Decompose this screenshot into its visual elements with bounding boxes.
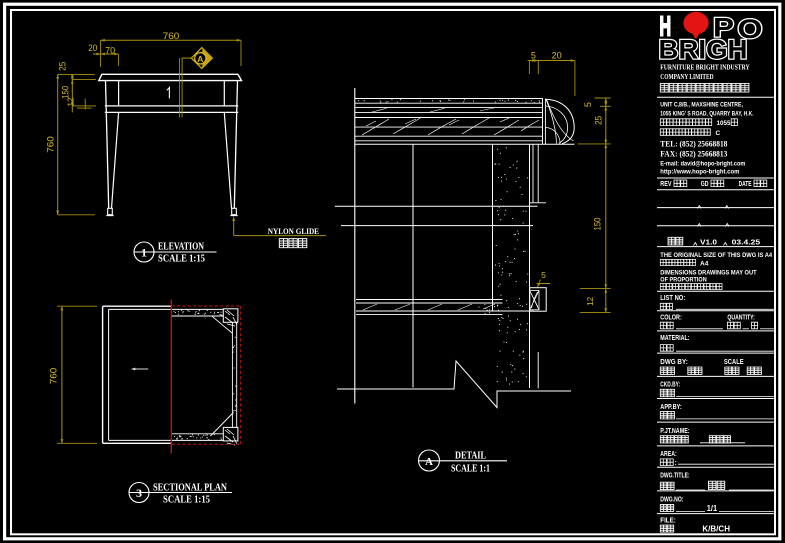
svg-text:QUANTITY:: QUANTITY: [727,314,755,321]
svg-text:150: 150 [61,86,71,99]
svg-text:DWG.TITLE:: DWG.TITLE: [660,473,689,480]
svg-text:FILE:: FILE: [660,517,676,524]
svg-text:20: 20 [88,43,97,53]
svg-text:760: 760 [163,31,180,42]
svg-text:70: 70 [105,45,115,55]
svg-text:1055 KING' S ROAD, QUARRY BAY,: 1055 KING' S ROAD, QUARRY BAY, H.K. [660,111,753,118]
svg-text:25: 25 [57,62,67,71]
svg-text:V1.0: V1.0 [700,237,717,246]
svg-text:K/B/CH: K/B/CH [702,525,730,534]
svg-text:TEL: (852) 25668818: TEL: (852) 25668818 [660,139,727,148]
svg-text:DWG.NO:: DWG.NO: [660,497,683,504]
svg-text:SCALE: SCALE [724,359,744,366]
svg-text:http://www.hopo-bright.com: http://www.hopo-bright.com [660,168,739,175]
svg-text:SCALE 1:15: SCALE 1:15 [163,495,210,506]
svg-text:5: 5 [531,51,536,61]
svg-text:12: 12 [66,97,76,106]
svg-text:760: 760 [49,368,60,385]
svg-text:COLOR:: COLOR: [660,314,682,321]
svg-text:12: 12 [585,297,595,306]
svg-text:LIST NO:: LIST NO: [660,295,685,302]
svg-text:SECTIONAL PLAN: SECTIONAL PLAN [153,482,227,494]
svg-text:SCALE 1:1: SCALE 1:1 [451,464,490,475]
svg-text:COMPANY LIMITED: COMPANY LIMITED [660,73,713,81]
svg-text:03.4.25: 03.4.25 [732,237,760,246]
svg-text:FURNITURE BRIGHT INDUSTRY: FURNITURE BRIGHT INDUSTRY [660,63,749,71]
svg-text:150: 150 [593,218,603,231]
svg-text:20: 20 [552,51,562,61]
svg-text:CKD.BY:: CKD.BY: [660,381,680,388]
svg-text:UNIT C,8/B., MAXSHINE CENTRE,: UNIT C,8/B., MAXSHINE CENTRE, [660,101,743,108]
svg-text:1055: 1055 [717,120,731,127]
svg-text:C: C [716,130,721,137]
svg-text:REV: REV [660,181,671,188]
svg-text:A: A [197,54,203,64]
svg-text:MATERIAL:: MATERIAL: [660,335,689,342]
svg-text:APP.BY:: APP.BY: [660,404,682,411]
svg-text:OF PROPORTION: OF PROPORTION [660,277,706,284]
svg-text:SCALE 1:15: SCALE 1:15 [158,254,205,265]
svg-text:1/1: 1/1 [707,504,718,513]
svg-text::: : [675,460,677,467]
svg-text:5: 5 [583,102,593,107]
svg-text:25: 25 [593,116,603,125]
svg-text:DWG BY:: DWG BY: [660,359,688,366]
svg-text:NYLON GLIDE: NYLON GLIDE [268,226,319,236]
svg-text:BRIGH: BRIGH [659,35,748,65]
svg-text:A: A [425,456,433,468]
svg-text:FAX: (852) 25668813: FAX: (852) 25668813 [660,150,727,159]
svg-text:AREA:: AREA: [660,451,676,458]
svg-text:A4: A4 [700,260,709,267]
svg-text:DATE: DATE [739,181,752,188]
svg-text:ELEVATION: ELEVATION [158,240,204,252]
svg-text:E-mail: david@hopo-bright.com: E-mail: david@hopo-bright.com [660,161,745,168]
svg-text:GD: GD [701,181,709,188]
svg-text:THE ORIGINAL SIZE OF THIS DWG: THE ORIGINAL SIZE OF THIS DWG IS A4 [660,252,772,259]
svg-text:P.JT.NAME:: P.JT.NAME: [660,428,689,435]
svg-text:5: 5 [541,270,546,280]
svg-text:760: 760 [46,136,57,153]
svg-text:DETAIL: DETAIL [455,450,486,461]
